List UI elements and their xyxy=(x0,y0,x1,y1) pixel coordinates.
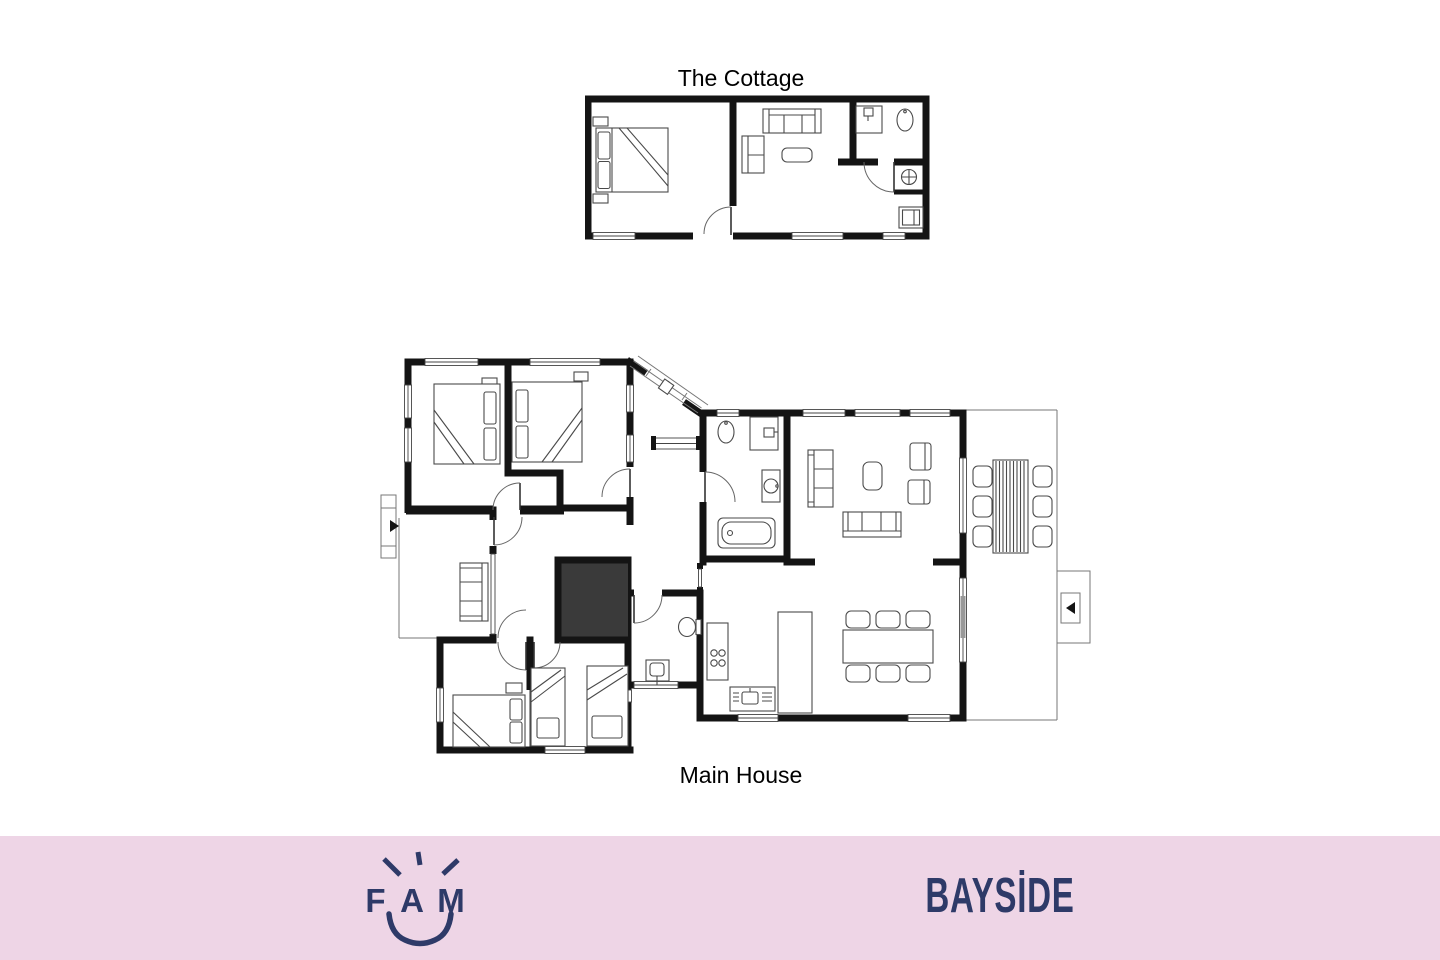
fam-logo: F A M xyxy=(358,846,488,952)
chair xyxy=(1033,496,1052,517)
footer-band: F A M BAYSİDE xyxy=(0,836,1440,960)
sofa xyxy=(808,450,833,507)
chair xyxy=(973,496,992,517)
pillow xyxy=(598,162,610,189)
pillow xyxy=(537,718,559,738)
kitchen-sink xyxy=(742,692,758,704)
sofa xyxy=(460,563,488,621)
bedroom-1 xyxy=(434,378,500,464)
island xyxy=(778,612,812,713)
bedroom-2 xyxy=(512,372,588,462)
chair xyxy=(973,526,992,547)
dining-table xyxy=(843,630,933,663)
chair xyxy=(876,665,900,682)
vanity xyxy=(762,470,780,502)
armchair xyxy=(910,443,931,470)
side-table xyxy=(863,462,882,490)
toilet-tank xyxy=(696,620,701,635)
chair xyxy=(846,665,870,682)
floorplan-page: The Cottage xyxy=(0,0,1440,960)
window-pane xyxy=(658,379,673,394)
chair xyxy=(1033,466,1052,487)
chair xyxy=(876,611,900,628)
sofa xyxy=(843,512,901,537)
cottage-floorplan xyxy=(585,95,930,245)
chair xyxy=(846,611,870,628)
pillow xyxy=(510,699,522,720)
wc xyxy=(646,618,701,686)
main-house-floorplan xyxy=(378,350,1093,762)
shower xyxy=(856,106,882,133)
fam-rays-icon xyxy=(384,852,458,875)
chair xyxy=(906,611,930,628)
pillow xyxy=(592,716,622,738)
pillow xyxy=(484,392,496,424)
bedroom-4 xyxy=(531,666,628,746)
dining-area xyxy=(843,611,933,682)
chair xyxy=(973,466,992,487)
pillow xyxy=(516,426,528,458)
outdoor-dining xyxy=(973,460,1052,553)
entry-arrow-icon xyxy=(1066,602,1075,614)
sofa xyxy=(763,109,821,133)
cottage-title: The Cottage xyxy=(541,65,941,92)
brand-name: BAYSİDE xyxy=(892,871,1108,920)
bedroom-3 xyxy=(453,683,525,747)
kitchen xyxy=(707,612,812,713)
pillow xyxy=(484,428,496,460)
main-house-title: Main House xyxy=(541,762,941,789)
nightstand xyxy=(574,372,588,381)
great-room xyxy=(808,443,931,537)
toilet xyxy=(679,618,696,637)
armchair xyxy=(908,480,930,504)
cottage-bedroom xyxy=(593,117,668,203)
pillow xyxy=(510,722,522,743)
slider-handle xyxy=(961,596,966,638)
pillow xyxy=(516,390,528,422)
nightstand xyxy=(506,683,522,693)
sink-counter xyxy=(730,687,775,711)
living-room-left xyxy=(460,563,488,621)
coffee-table xyxy=(782,148,812,162)
chair xyxy=(1033,526,1052,547)
chair xyxy=(906,665,930,682)
nightstand xyxy=(593,117,608,126)
dark-room xyxy=(558,560,628,640)
nightstand xyxy=(593,194,608,203)
entry-arrow-icon xyxy=(390,520,399,532)
pillow xyxy=(598,132,610,159)
